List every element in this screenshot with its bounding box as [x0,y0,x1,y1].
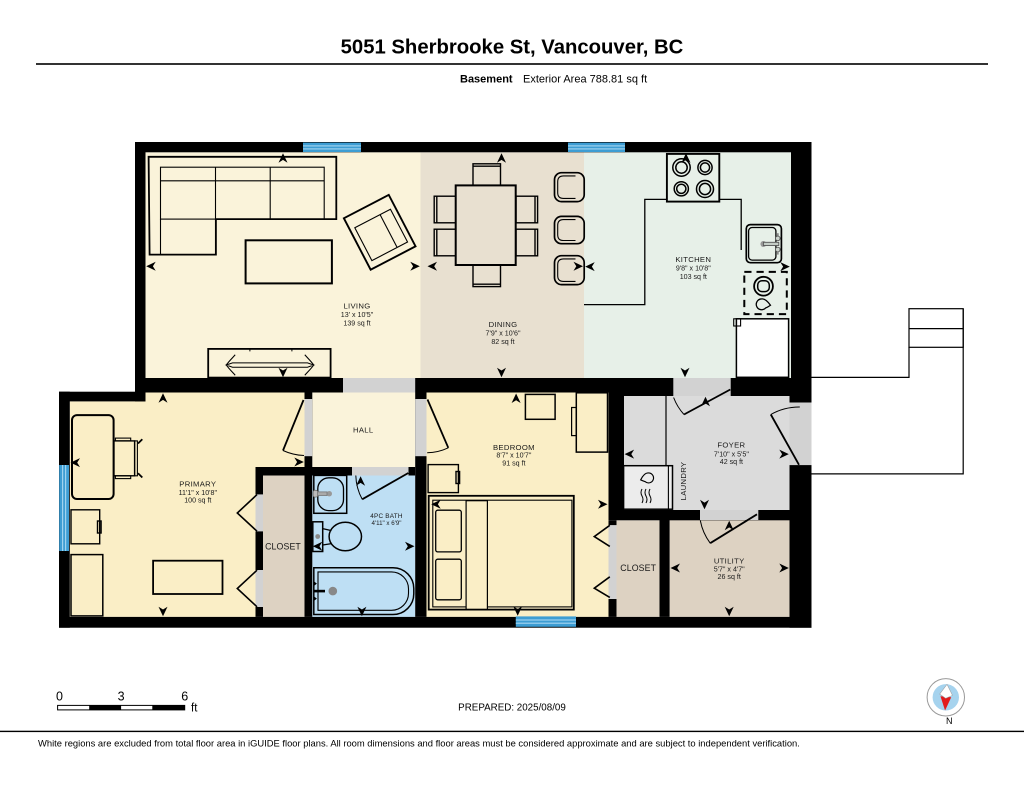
svg-text:LAUNDRY: LAUNDRY [679,462,688,501]
svg-text:26 sq ft: 26 sq ft [718,573,741,581]
svg-text:CLOSET: CLOSET [620,563,656,573]
svg-text:6: 6 [181,690,188,704]
svg-text:PREPARED: 2025/08/09: PREPARED: 2025/08/09 [458,703,566,714]
svg-text:8'7" x 10'7": 8'7" x 10'7" [496,452,531,460]
svg-text:Exterior Area 788.81 sq ft: Exterior Area 788.81 sq ft [523,74,647,86]
svg-text:4'11" x 6'9": 4'11" x 6'9" [371,520,401,527]
svg-text:UTILITY: UTILITY [714,557,745,566]
svg-text:ft: ft [191,703,198,715]
svg-text:CLOSET: CLOSET [265,542,301,552]
svg-text:13' x 10'5": 13' x 10'5" [341,311,374,319]
svg-text:3: 3 [118,690,125,704]
svg-text:82 sq ft: 82 sq ft [491,338,514,346]
svg-text:103 sq ft: 103 sq ft [680,273,707,281]
svg-text:PRIMARY: PRIMARY [179,479,216,488]
svg-text:9'8" x 10'8": 9'8" x 10'8" [676,265,711,273]
svg-text:7'9" x 10'6": 7'9" x 10'6" [486,330,521,338]
svg-text:HALL: HALL [353,426,374,435]
svg-text:DINING: DINING [489,320,518,329]
svg-text:Basement: Basement [460,74,513,86]
svg-text:42 sq ft: 42 sq ft [720,458,743,466]
svg-text:139 sq ft: 139 sq ft [343,319,370,327]
svg-text:FOYER: FOYER [717,441,745,450]
svg-text:LIVING: LIVING [343,302,370,311]
svg-text:5'7" x 4'7": 5'7" x 4'7" [714,565,745,573]
svg-text:N: N [946,716,953,726]
svg-text:91 sq ft: 91 sq ft [502,460,525,468]
svg-text:White regions are excluded fro: White regions are excluded from total fl… [38,738,800,749]
svg-text:100 sq ft: 100 sq ft [184,496,211,504]
svg-text:5051 Sherbrooke St, Vancouver,: 5051 Sherbrooke St, Vancouver, BC [341,36,684,58]
svg-text:KITCHEN: KITCHEN [675,255,711,264]
svg-text:0: 0 [56,690,63,704]
svg-text:4PC BATH: 4PC BATH [370,513,403,520]
